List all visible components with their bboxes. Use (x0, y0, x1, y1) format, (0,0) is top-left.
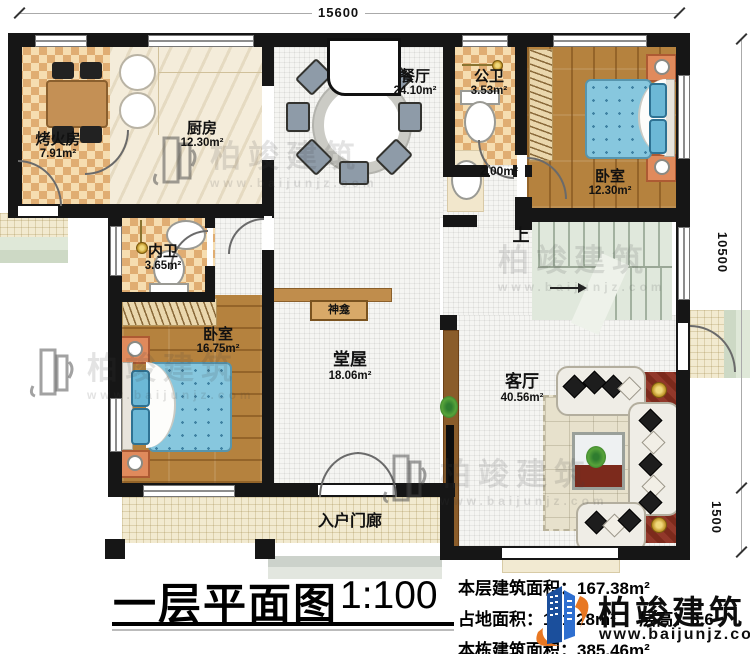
room-area: 2.00m² (480, 165, 530, 179)
room-label-bedroom-topright: 卧室 12.30m² (570, 168, 650, 198)
coffee-table-plant (586, 446, 606, 468)
fixture-line (462, 64, 494, 66)
porch-step-strip (268, 556, 442, 567)
stair-direction-arrow (550, 287, 578, 289)
room-area: 12.30m² (162, 137, 242, 150)
wardrobe-hangers (529, 49, 553, 161)
watermark-building-icon (25, 342, 77, 402)
window (110, 398, 122, 452)
room-label-kaohuofang: 烤火房 7.91m² (18, 131, 98, 161)
bed-pillow (131, 370, 150, 407)
room-name: 客厅 (480, 372, 564, 392)
wall (443, 215, 477, 227)
kitchen-sink-basin (119, 92, 156, 129)
room-name: 卧室 (570, 168, 650, 185)
room-label-neiwei: 内卫 3.65m² (127, 243, 199, 273)
cabinet-medallion (651, 517, 667, 533)
room-name: 公卫 (455, 68, 523, 85)
room-area: 24.10m² (375, 85, 455, 98)
stair-arrow-head (578, 283, 587, 293)
plant (440, 396, 458, 418)
dimension-right-lower: 1500 (709, 501, 724, 534)
stairs-up-label: 上 (510, 226, 532, 246)
room-name: 堂屋 (308, 350, 392, 370)
room-area: 16.75m² (178, 343, 258, 356)
wall (440, 483, 455, 497)
wall (122, 204, 274, 218)
room-label-entry-porch: 入户门廊 (295, 513, 405, 531)
wall (515, 47, 527, 155)
bed-pillow (649, 119, 667, 154)
room-area: 40.56m² (480, 392, 564, 405)
left-stoop-step-1 (0, 237, 68, 250)
window (148, 35, 254, 47)
room-label-gongwei: 公卫 3.53m² (455, 68, 523, 98)
room-name: 卧室 (178, 326, 258, 343)
room-area: 3.53m² (455, 85, 523, 98)
bed-pillow (131, 408, 150, 445)
door-opening (678, 323, 688, 370)
brand-url: www.baijunjz.com (599, 626, 750, 644)
fire-room-chair (80, 62, 102, 79)
entrance-opening (502, 548, 618, 558)
title-underline-shadow (112, 629, 454, 631)
bed-pillow (649, 83, 667, 118)
window (553, 35, 647, 47)
dining-chair (398, 102, 422, 132)
porch-pillar (255, 539, 275, 559)
drain-line (140, 220, 142, 244)
wardrobe-hangers (122, 298, 217, 326)
nightstand (646, 54, 677, 82)
window (678, 75, 690, 159)
wall (440, 497, 454, 560)
kitchen-sink-basin (119, 54, 156, 91)
room-name: 餐厅 (375, 68, 455, 85)
shrine-altar-box: 神龛 (310, 300, 368, 321)
room-area: 3.65m² (127, 260, 199, 273)
fire-room-chair (52, 62, 74, 79)
room-label-keting: 客厅 40.56m² (480, 372, 564, 405)
wall (122, 292, 215, 302)
left-stoop-step-2 (0, 250, 68, 263)
dining-chair (286, 102, 310, 132)
window (143, 485, 235, 497)
window (35, 35, 87, 47)
wall (205, 266, 215, 302)
dimension-value: 15600 (318, 5, 359, 20)
wall (527, 208, 676, 222)
room-area: 7.91m² (18, 148, 98, 161)
brand-logo-icon (528, 582, 594, 654)
room-label-tangwu: 堂屋 18.06m² (308, 350, 392, 383)
dimension-value: 1500 (709, 501, 724, 534)
label-sink-nook-area: 2.00m² (480, 165, 530, 179)
room-area: 18.06m² (308, 370, 392, 383)
room-label-canting: 餐厅 24.10m² (375, 68, 455, 98)
room-label-chufang: 厨房 12.30m² (162, 120, 242, 150)
wall (440, 315, 457, 330)
floor-plan-canvas: 神龛 (0, 0, 750, 654)
dimension-line-right (741, 40, 742, 553)
porch-pillar (105, 539, 125, 559)
door-opening (264, 216, 272, 250)
dimension-value: 10500 (715, 232, 730, 273)
dimension-top: 15600 (312, 5, 365, 20)
wall (262, 47, 274, 86)
plan-scale: 1:100 (340, 574, 438, 618)
nightstand (120, 336, 150, 364)
wall (205, 218, 215, 228)
nightstand (120, 450, 150, 478)
dimension-right-upper: 10500 (715, 232, 730, 273)
room-name: 厨房 (162, 120, 242, 137)
room-area: 12.30m² (570, 185, 650, 198)
cabinet-medallion (651, 382, 667, 398)
room-name: 烤火房 (18, 131, 98, 148)
title-underline (112, 622, 454, 626)
toilet-bowl (464, 101, 496, 143)
wall (443, 47, 455, 165)
dining-chair (339, 161, 369, 185)
window (110, 226, 122, 276)
nightstand (646, 154, 677, 182)
window (678, 227, 690, 300)
window (462, 35, 508, 47)
shrine-label: 神龛 (328, 304, 350, 317)
room-name: 内卫 (127, 243, 199, 260)
fire-room-table (46, 80, 108, 128)
room-label-bedroom-bottomleft: 卧室 16.75m² (178, 326, 258, 356)
door-opening (18, 206, 58, 216)
wall (262, 250, 274, 483)
